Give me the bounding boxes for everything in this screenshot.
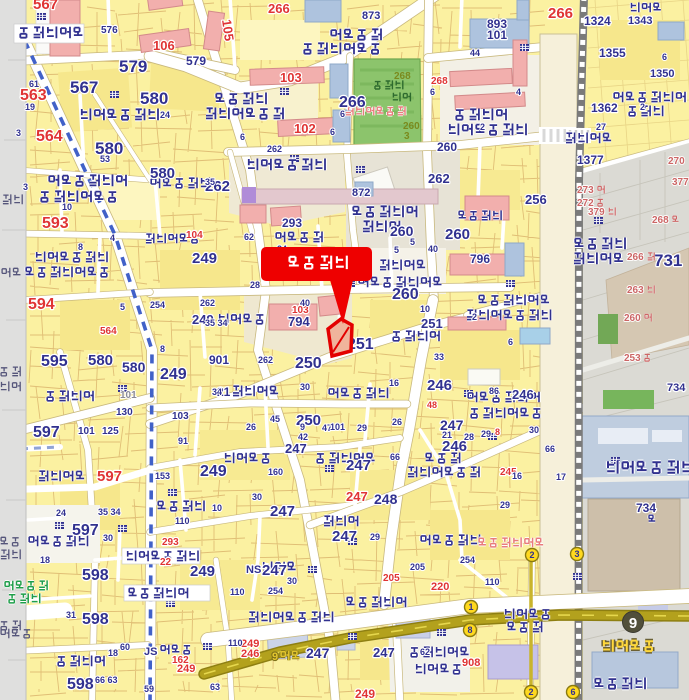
svg-text:8: 8 <box>467 625 472 635</box>
svg-text:873: 873 <box>362 10 380 22</box>
svg-text:24: 24 <box>56 508 66 518</box>
svg-text:246: 246 <box>512 387 534 402</box>
svg-text:35 34: 35 34 <box>98 507 121 517</box>
svg-text:110: 110 <box>228 638 243 648</box>
svg-text:262: 262 <box>200 298 215 308</box>
svg-text:29: 29 <box>481 429 491 439</box>
svg-text:263: 263 <box>627 285 644 296</box>
svg-text:40: 40 <box>428 244 438 254</box>
svg-text:598: 598 <box>82 611 109 628</box>
svg-text:249: 249 <box>355 687 375 700</box>
svg-text:4: 4 <box>110 233 115 243</box>
svg-text:21: 21 <box>442 430 452 440</box>
svg-text:205: 205 <box>410 562 425 572</box>
svg-text:101: 101 <box>330 422 345 432</box>
svg-text:29: 29 <box>370 532 380 542</box>
svg-text:256: 256 <box>525 192 547 207</box>
svg-text:6: 6 <box>570 687 575 697</box>
svg-text:250: 250 <box>295 355 322 372</box>
svg-text:103: 103 <box>280 70 302 85</box>
svg-text:42: 42 <box>298 432 308 442</box>
svg-text:249: 249 <box>200 463 227 480</box>
svg-text:598: 598 <box>82 567 109 584</box>
svg-text:110: 110 <box>175 516 190 526</box>
svg-text:NS: NS <box>246 564 261 576</box>
svg-text:104: 104 <box>186 230 203 241</box>
svg-text:6: 6 <box>662 52 667 62</box>
svg-text:247: 247 <box>306 645 330 661</box>
svg-text:594: 594 <box>28 296 55 313</box>
svg-text:901: 901 <box>209 353 229 367</box>
svg-text:6: 6 <box>508 337 513 347</box>
svg-text:62: 62 <box>244 232 254 242</box>
svg-text:580: 580 <box>150 165 175 182</box>
svg-text:22: 22 <box>160 557 172 568</box>
svg-text:247: 247 <box>373 645 395 660</box>
svg-text:16: 16 <box>512 471 522 481</box>
svg-text:908: 908 <box>462 657 480 669</box>
svg-text:249: 249 <box>160 366 187 383</box>
svg-text:249: 249 <box>192 250 217 267</box>
svg-text:6: 6 <box>340 109 345 119</box>
svg-text:8: 8 <box>160 344 165 354</box>
svg-text:260: 260 <box>437 140 457 154</box>
svg-text:48: 48 <box>427 400 437 410</box>
svg-text:35: 35 <box>205 177 215 187</box>
svg-text:564: 564 <box>100 326 117 337</box>
svg-text:254: 254 <box>268 586 283 596</box>
svg-text:731: 731 <box>654 251 682 270</box>
svg-text:9: 9 <box>300 422 305 432</box>
svg-text:61: 61 <box>29 79 39 89</box>
svg-text:597: 597 <box>97 468 122 485</box>
svg-text:101: 101 <box>487 28 507 42</box>
svg-text:597: 597 <box>33 424 60 441</box>
svg-text:268: 268 <box>431 76 448 87</box>
svg-text:10: 10 <box>420 304 430 314</box>
svg-text:JS: JS <box>144 646 157 658</box>
svg-text:105: 105 <box>219 18 237 42</box>
svg-text:26: 26 <box>246 422 256 432</box>
svg-text:593: 593 <box>42 215 69 232</box>
svg-text:3: 3 <box>16 128 21 138</box>
svg-text:8: 8 <box>495 427 500 437</box>
svg-text:2: 2 <box>640 102 645 112</box>
svg-text:249: 249 <box>190 563 215 580</box>
svg-text:266: 266 <box>627 252 644 263</box>
svg-text:35 34: 35 34 <box>205 318 228 328</box>
svg-text:253: 253 <box>624 353 641 364</box>
svg-text:268: 268 <box>652 215 669 226</box>
svg-text:254: 254 <box>150 300 165 310</box>
svg-text:19: 19 <box>25 102 35 112</box>
svg-text:247: 247 <box>346 489 368 504</box>
svg-text:2: 2 <box>529 550 534 560</box>
svg-text:1: 1 <box>468 602 473 612</box>
svg-text:30: 30 <box>529 425 539 435</box>
svg-text:564: 564 <box>36 128 63 145</box>
svg-text:262: 262 <box>428 171 450 186</box>
svg-text:27: 27 <box>596 122 606 132</box>
svg-text:262: 262 <box>258 355 273 365</box>
svg-text:44: 44 <box>470 48 480 58</box>
svg-text:103: 103 <box>172 411 189 422</box>
svg-text:254: 254 <box>460 555 475 565</box>
svg-text:45: 45 <box>270 414 280 424</box>
svg-text:273: 273 <box>577 185 594 196</box>
svg-text:31: 31 <box>66 610 76 620</box>
svg-text:33: 33 <box>434 352 444 362</box>
svg-text:130: 130 <box>116 407 133 418</box>
svg-text:160: 160 <box>268 467 283 477</box>
svg-text:220: 220 <box>431 581 449 593</box>
svg-text:5: 5 <box>410 237 415 247</box>
svg-text:2: 2 <box>480 122 485 132</box>
svg-text:580: 580 <box>122 359 146 375</box>
svg-text:1362: 1362 <box>591 101 618 115</box>
svg-text:28: 28 <box>250 280 260 290</box>
svg-text:293: 293 <box>282 216 302 230</box>
svg-text:8: 8 <box>78 242 83 252</box>
svg-text:16: 16 <box>389 378 399 388</box>
svg-text:66 63: 66 63 <box>95 675 118 685</box>
svg-text:2: 2 <box>528 687 533 697</box>
svg-text:18: 18 <box>40 555 50 565</box>
svg-text:260: 260 <box>445 226 470 243</box>
svg-text:6: 6 <box>240 132 245 142</box>
svg-text:579: 579 <box>119 57 147 76</box>
svg-text:872: 872 <box>352 187 370 199</box>
svg-text:377: 377 <box>672 177 689 188</box>
svg-text:1350: 1350 <box>650 68 674 80</box>
svg-text:5: 5 <box>394 245 399 255</box>
svg-text:247: 247 <box>332 528 357 545</box>
svg-text:379: 379 <box>588 207 605 218</box>
svg-text:30: 30 <box>287 576 297 586</box>
svg-text:63: 63 <box>210 682 220 692</box>
svg-text:248: 248 <box>374 491 398 507</box>
svg-text:66: 66 <box>545 444 555 454</box>
svg-text:10: 10 <box>212 503 222 513</box>
svg-text:246: 246 <box>241 648 259 660</box>
svg-text:125: 125 <box>102 426 119 437</box>
svg-text:62: 62 <box>420 647 430 657</box>
svg-text:794: 794 <box>288 314 310 329</box>
svg-text:59: 59 <box>144 684 154 694</box>
svg-text:10: 10 <box>62 202 72 212</box>
svg-text:1377: 1377 <box>577 153 604 167</box>
svg-text:260: 260 <box>624 313 641 324</box>
svg-text:246: 246 <box>427 377 452 394</box>
svg-text:18: 18 <box>108 648 118 658</box>
svg-text:3: 3 <box>23 182 28 192</box>
svg-text:1343: 1343 <box>628 15 652 27</box>
svg-text:567: 567 <box>70 78 98 97</box>
svg-text:597: 597 <box>72 522 99 539</box>
svg-text:734: 734 <box>667 382 686 394</box>
svg-text:40: 40 <box>300 298 310 308</box>
svg-text:260: 260 <box>392 286 419 303</box>
svg-text:734: 734 <box>636 501 656 515</box>
svg-text:268: 268 <box>394 71 411 82</box>
svg-text:567: 567 <box>33 0 58 13</box>
svg-text:86: 86 <box>489 386 499 396</box>
svg-text:2: 2 <box>472 312 477 322</box>
svg-text:270: 270 <box>668 156 685 167</box>
svg-text:251: 251 <box>421 316 443 331</box>
svg-text:598: 598 <box>67 676 94 693</box>
svg-text:91: 91 <box>178 436 188 446</box>
svg-text:205: 205 <box>383 573 400 584</box>
svg-text:249: 249 <box>177 663 195 675</box>
svg-text:576: 576 <box>101 25 118 36</box>
svg-text:60: 60 <box>120 642 130 652</box>
svg-text:4: 4 <box>516 87 521 97</box>
svg-text:6: 6 <box>430 87 435 97</box>
svg-text:110: 110 <box>230 587 245 597</box>
svg-text:595: 595 <box>41 353 68 370</box>
svg-text:153: 153 <box>155 471 170 481</box>
svg-text:29: 29 <box>500 500 510 510</box>
svg-text:266: 266 <box>548 5 573 22</box>
svg-text:3: 3 <box>404 131 410 142</box>
svg-text:5: 5 <box>120 302 125 312</box>
svg-text:28: 28 <box>464 432 474 442</box>
svg-text:30: 30 <box>300 382 310 392</box>
svg-text:30: 30 <box>103 533 113 543</box>
svg-text:3: 3 <box>574 549 579 559</box>
svg-text:796: 796 <box>470 252 490 266</box>
svg-text:9: 9 <box>629 615 637 632</box>
svg-text:26: 26 <box>392 417 402 427</box>
svg-text:53: 53 <box>100 154 110 164</box>
svg-text:579: 579 <box>186 54 206 68</box>
svg-text:247: 247 <box>346 457 371 474</box>
svg-text:29: 29 <box>357 423 367 433</box>
svg-text:266: 266 <box>268 1 290 16</box>
svg-text:106: 106 <box>153 38 175 53</box>
svg-text:293: 293 <box>162 537 179 548</box>
svg-text:34: 34 <box>212 387 222 397</box>
svg-text:1324: 1324 <box>584 14 611 28</box>
svg-text:247: 247 <box>270 503 295 520</box>
svg-text:247: 247 <box>285 441 307 456</box>
svg-text:580: 580 <box>140 89 168 108</box>
svg-text:101: 101 <box>78 426 95 437</box>
svg-text:262: 262 <box>267 144 282 154</box>
svg-text:247: 247 <box>262 562 287 579</box>
svg-text:101: 101 <box>120 390 137 401</box>
svg-text:66: 66 <box>390 452 400 462</box>
svg-text:9: 9 <box>272 651 278 663</box>
svg-text:30: 30 <box>252 492 262 502</box>
svg-text:1355: 1355 <box>599 46 626 60</box>
svg-text:102: 102 <box>294 121 316 136</box>
svg-text:17: 17 <box>556 472 566 482</box>
svg-text:24: 24 <box>160 110 170 120</box>
svg-text:580: 580 <box>88 352 113 369</box>
svg-text:6: 6 <box>330 127 335 137</box>
svg-text:110: 110 <box>485 577 500 587</box>
